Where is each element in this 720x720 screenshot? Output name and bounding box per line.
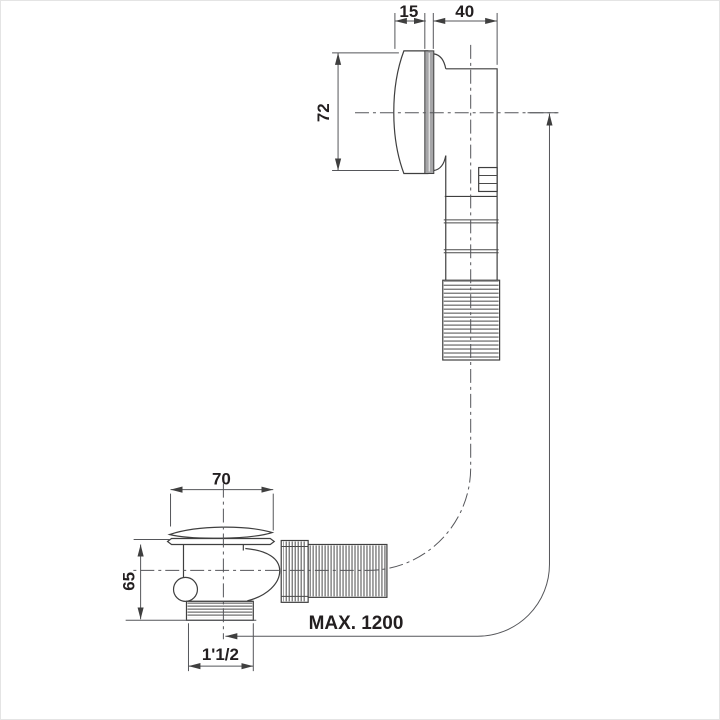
technical-drawing-canvas: 15 40 72 70 65 1'1/2 MAX. 1200: [0, 0, 720, 720]
drain-plug-cap: [170, 527, 273, 538]
overflow-flare: [434, 54, 446, 69]
dim-overflow-body-depth: 40: [433, 2, 497, 65]
dim-72-label: 72: [314, 103, 333, 122]
dim-40-label: 40: [455, 2, 474, 21]
drain-flange: [168, 539, 275, 545]
dim-max-1200-label: MAX. 1200: [309, 613, 404, 634]
dim-70-label: 70: [212, 470, 231, 489]
dim-15-label: 15: [399, 2, 418, 21]
drain-outlet-threads: [186, 601, 253, 620]
dim-drain-cap-diameter: 70: [171, 470, 274, 531]
dim-overflow-cap-depth: 15: [395, 2, 433, 49]
drain-coupling-nut: [281, 540, 308, 602]
overflow-fitting: [394, 51, 500, 360]
dim-drain-outlet-thread: 1'1/2: [188, 623, 253, 671]
drain-ball: [174, 577, 198, 601]
dim-hose-max-length: MAX. 1200: [225, 113, 557, 637]
drain-tee-bulge: [245, 548, 279, 600]
dim-65-label: 65: [120, 572, 139, 591]
dim-thread-label: 1'1/2: [202, 645, 239, 664]
dim-overflow-height: 72: [314, 53, 399, 171]
overflow-clip-tabs: [479, 168, 497, 192]
drain-fitting: [168, 527, 387, 620]
bath-waste-overflow-drawing: 15 40 72 70 65 1'1/2 MAX. 1200: [1, 1, 719, 719]
